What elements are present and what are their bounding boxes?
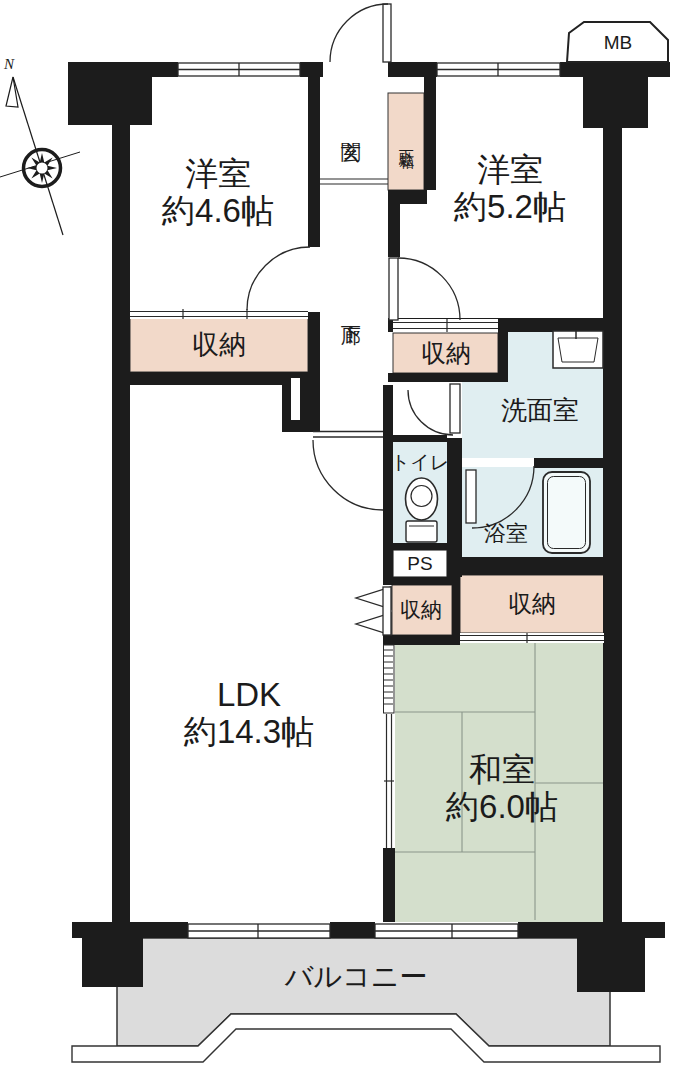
shoe-cabinet-label: 下駄箱 <box>398 138 415 144</box>
floor-plan-drawing <box>0 0 678 1065</box>
bathtub-icon <box>543 472 590 553</box>
storage-ldk-label: 収納 <box>400 598 442 622</box>
meter-box-label: MB <box>604 32 633 53</box>
storage-nw-label: 収納 <box>192 330 246 360</box>
entrance-label: 玄関 <box>340 125 362 129</box>
balcony-label: バルコニー <box>285 961 428 992</box>
fusuma-hatch <box>384 645 395 713</box>
bedroom1-label: 洋室約4.6帖 <box>162 156 274 230</box>
pipe-space-label: PS <box>407 553 432 574</box>
storage-n-label: 収納 <box>421 339 471 367</box>
sink-icon <box>553 331 603 368</box>
bathroom-label: 浴室 <box>484 522 528 547</box>
washroom-label: 洗面室 <box>501 396 579 425</box>
storage-washitsu-label: 収納 <box>508 591 556 618</box>
toilet-icon <box>406 478 438 542</box>
compass-north-label: N <box>4 56 14 73</box>
toilet-label: トイレ <box>391 452 449 473</box>
japanese-room-label: 和室約6.0帖 <box>446 752 558 826</box>
wall-niche <box>291 378 300 420</box>
ldk-label: LDK約14.3帖 <box>184 677 314 751</box>
bedroom2-label: 洋室約5.2帖 <box>454 152 566 226</box>
floor-plan: N 洋室約4.6帖 洋室約5.2帖 LDK約14.3帖 和室約6.0帖 収納 収… <box>0 0 678 1065</box>
hallway-label: 廊下 <box>340 308 362 312</box>
balcony-shape <box>72 938 660 1062</box>
